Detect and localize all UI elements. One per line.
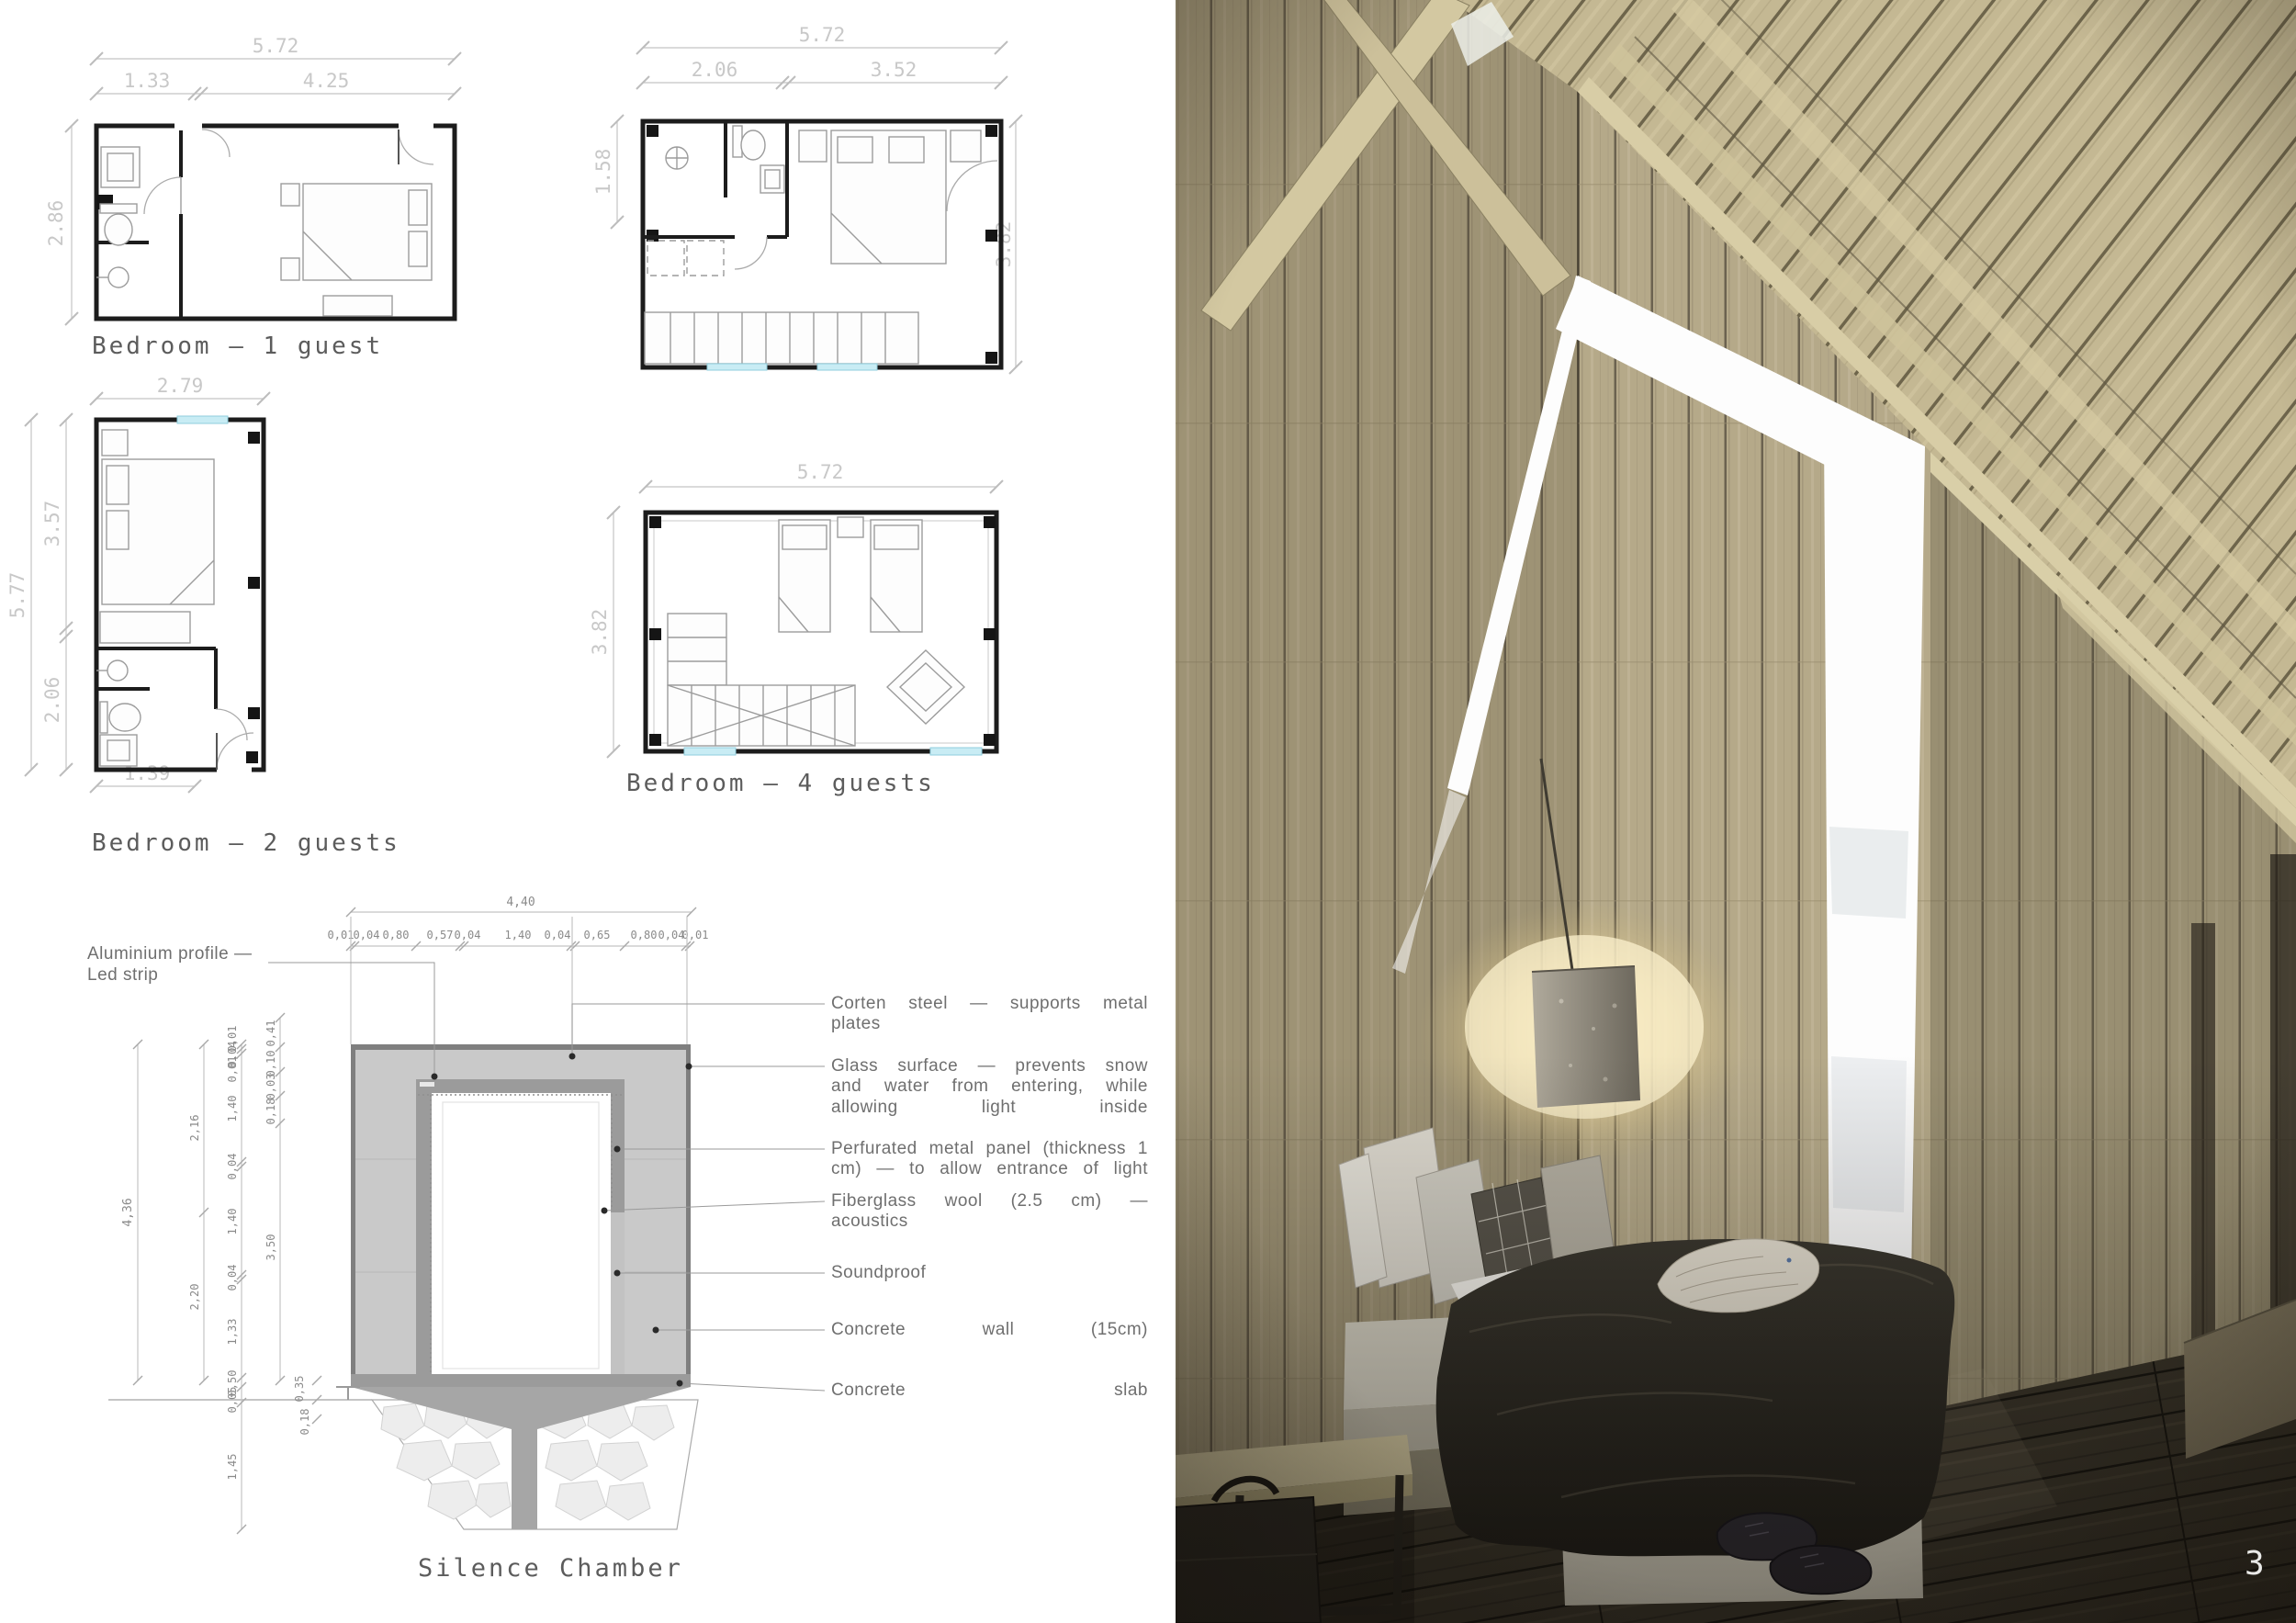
- svg-text:3.52: 3.52: [871, 59, 917, 81]
- section-silence-chamber: 4,40 0,01 0,04 0,80 0,57 0,04 1,40 0,04 …: [73, 877, 836, 1623]
- svg-text:5.72: 5.72: [799, 24, 846, 46]
- plan1-bathroom-fixtures: [96, 147, 181, 287]
- svg-text:0,18: 0,18: [264, 1099, 277, 1125]
- svg-text:1.58: 1.58: [592, 149, 614, 196]
- svg-text:1,45: 1,45: [226, 1454, 239, 1481]
- section-left-dimensions: 4,36 2,16 2,20 0,01 0,04 0,01 1,40 0,04 …: [121, 1013, 321, 1534]
- svg-text:2.06: 2.06: [41, 677, 63, 724]
- svg-text:0,04: 0,04: [226, 1154, 239, 1180]
- svg-text:0,01: 0,01: [328, 929, 355, 941]
- plan1-bedroom-furniture: [202, 130, 433, 316]
- svg-text:1,40: 1,40: [226, 1209, 239, 1235]
- svg-text:3.82: 3.82: [993, 221, 1015, 268]
- plan3-title: Bedroom — 2 guests: [92, 829, 400, 857]
- svg-text:0,04: 0,04: [658, 929, 685, 941]
- svg-text:0,04: 0,04: [545, 929, 571, 941]
- svg-text:0,41: 0,41: [264, 1020, 277, 1047]
- svg-text:4,36: 4,36: [121, 1198, 135, 1226]
- callout-soundproof: Soundproof: [831, 1263, 1148, 1304]
- plan4-beds: [779, 517, 922, 632]
- svg-text:5.72: 5.72: [253, 35, 299, 57]
- svg-text:0,04: 0,04: [226, 1265, 239, 1291]
- callout-concrete-wall: Concrete wall (15cm): [831, 1320, 1148, 1361]
- plan4-ottoman: [887, 650, 964, 724]
- svg-text:0,01: 0,01: [226, 1056, 239, 1083]
- callout-corten-steel: Corten steel — supports metal plates: [831, 994, 1148, 1055]
- interior-render-photo: 3: [1176, 0, 2296, 1623]
- svg-text:0,57: 0,57: [427, 929, 454, 941]
- svg-text:2,20: 2,20: [188, 1284, 201, 1311]
- svg-text:2.06: 2.06: [692, 59, 738, 81]
- svg-text:0,01: 0,01: [682, 929, 709, 941]
- plan3-bathroom-fixtures: [96, 660, 253, 773]
- svg-text:1.33: 1.33: [124, 70, 171, 92]
- svg-text:2.86: 2.86: [45, 200, 67, 247]
- callout-fiberglass-wool: Fiberglass wool (2.5 cm) — acoustics: [831, 1191, 1148, 1253]
- svg-text:1,40: 1,40: [505, 929, 532, 941]
- section-top-dimensions: 4,40 0,01 0,04 0,80 0,57 0,04 1,40 0,04 …: [328, 896, 709, 1054]
- svg-text:4.25: 4.25: [303, 70, 350, 92]
- plan4-stairs: [668, 614, 855, 746]
- presentation-sheet: 5.72 1.33 4.25 2.86 Bedroom — 1 guest: [0, 0, 2296, 1623]
- callout-glass-surface: Glass surface — prevents snow and water …: [831, 1056, 1148, 1139]
- svg-text:0,35: 0,35: [293, 1376, 306, 1403]
- svg-text:0,80: 0,80: [631, 929, 658, 941]
- svg-text:0,04: 0,04: [354, 929, 380, 941]
- plan3-bedroom-furniture: [100, 430, 214, 643]
- floor-plan-upper-level: 5.72 2.06 3.52 1.58 3.82: [551, 18, 1029, 395]
- section-title: Silence Chamber: [418, 1554, 683, 1583]
- svg-text:1,40: 1,40: [226, 1096, 239, 1122]
- svg-text:0,18: 0,18: [298, 1409, 311, 1436]
- svg-text:1,33: 1,33: [226, 1319, 239, 1346]
- svg-text:0,03: 0,03: [264, 1074, 277, 1100]
- photo-overlays: [1176, 0, 2296, 1623]
- svg-text:3.57: 3.57: [41, 501, 63, 547]
- svg-text:0,80: 0,80: [383, 929, 410, 941]
- svg-text:0,05: 0,05: [226, 1387, 239, 1414]
- svg-text:3.82: 3.82: [589, 609, 611, 656]
- callout-concrete-slab: Concrete slab: [831, 1381, 1148, 1422]
- floor-plan-bedroom-1-guest: 5.72 1.33 4.25 2.86: [18, 18, 478, 377]
- plan1-title: Bedroom — 1 guest: [92, 332, 383, 360]
- page-number: 3: [2245, 1545, 2265, 1583]
- svg-text:2,16: 2,16: [188, 1115, 201, 1142]
- svg-text:0,65: 0,65: [584, 929, 611, 941]
- plan2-bedroom-furniture: [799, 130, 997, 264]
- svg-text:4,40: 4,40: [506, 896, 535, 909]
- svg-text:5.72: 5.72: [797, 461, 844, 483]
- svg-text:5.77: 5.77: [9, 572, 28, 619]
- label-aluminium-profile: Aluminium profile — Led strip: [87, 944, 298, 986]
- plan4-title: Bedroom — 4 guests: [626, 770, 935, 797]
- svg-text:0,04: 0,04: [455, 929, 481, 941]
- svg-text:3,50: 3,50: [264, 1234, 277, 1261]
- floor-plan-bedroom-2-guests: 2.79 5.77 3.57 2.06 1.39: [9, 367, 312, 886]
- svg-text:0,10: 0,10: [264, 1051, 277, 1077]
- svg-text:2.79: 2.79: [157, 375, 204, 397]
